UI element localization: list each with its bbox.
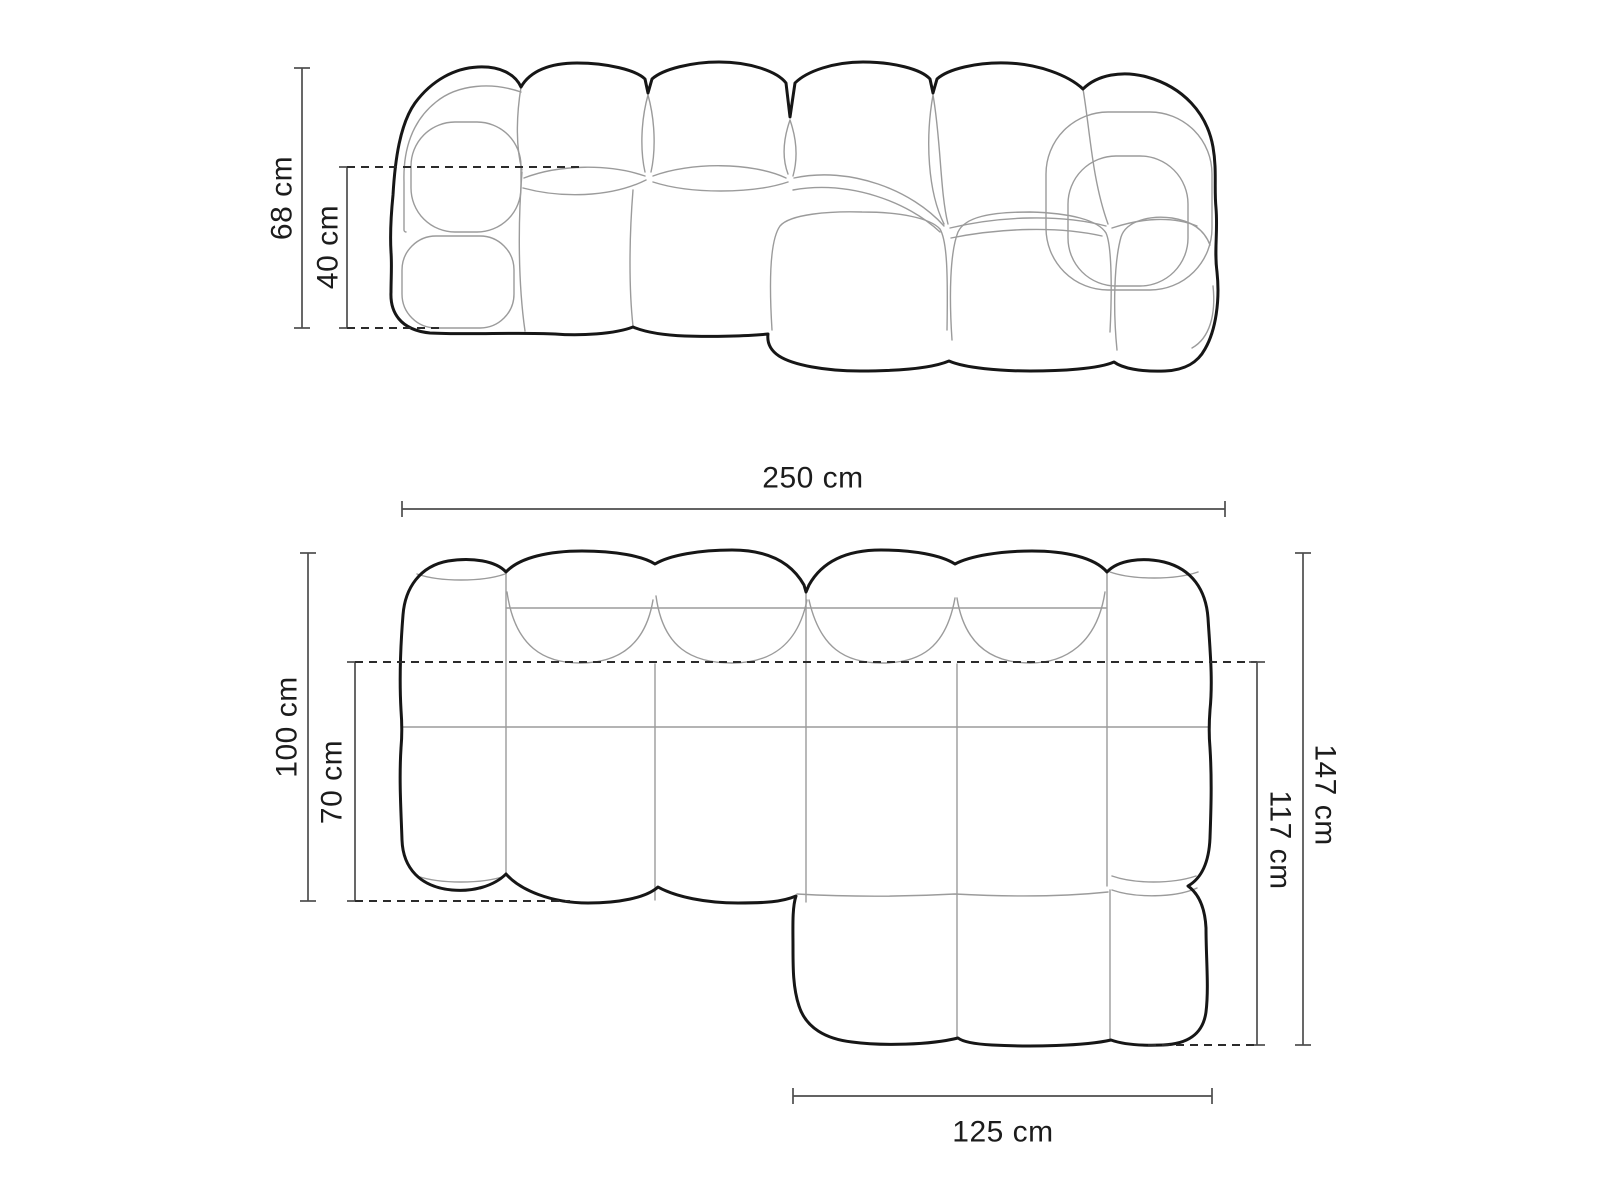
top-view-seams <box>402 572 1209 1040</box>
dim-chaise-width-label: 125 cm <box>952 1116 1053 1149</box>
dim-overall-width-label: 250 cm <box>762 462 863 495</box>
dim-seat-height-dashes <box>347 167 585 328</box>
dim-chaise-depth <box>1249 662 1265 1045</box>
front-sofa-outline <box>391 62 1218 371</box>
dim-overall-width <box>402 501 1225 517</box>
dim-total-depth-label: 147 cm <box>1309 744 1342 845</box>
top-view: 250 cm 100 cm 70 cm 147 cm <box>271 462 1342 1149</box>
dim-seat-depth <box>347 662 363 901</box>
sofa-dimension-diagram: 68 cm 40 cm <box>0 0 1600 1200</box>
diagram-svg: 68 cm 40 cm <box>0 0 1600 1200</box>
front-view: 68 cm 40 cm <box>266 62 1218 371</box>
dim-body-depth-label: 100 cm <box>271 676 304 777</box>
dim-seat-depth-label: 70 cm <box>316 740 349 824</box>
dim-overall-height-label: 68 cm <box>266 156 299 240</box>
dim-chaise-depth-label: 117 cm <box>1264 790 1297 889</box>
dim-seat-height-label: 40 cm <box>312 205 345 289</box>
front-view-seams <box>402 86 1214 350</box>
dim-chaise-width <box>793 1088 1212 1104</box>
